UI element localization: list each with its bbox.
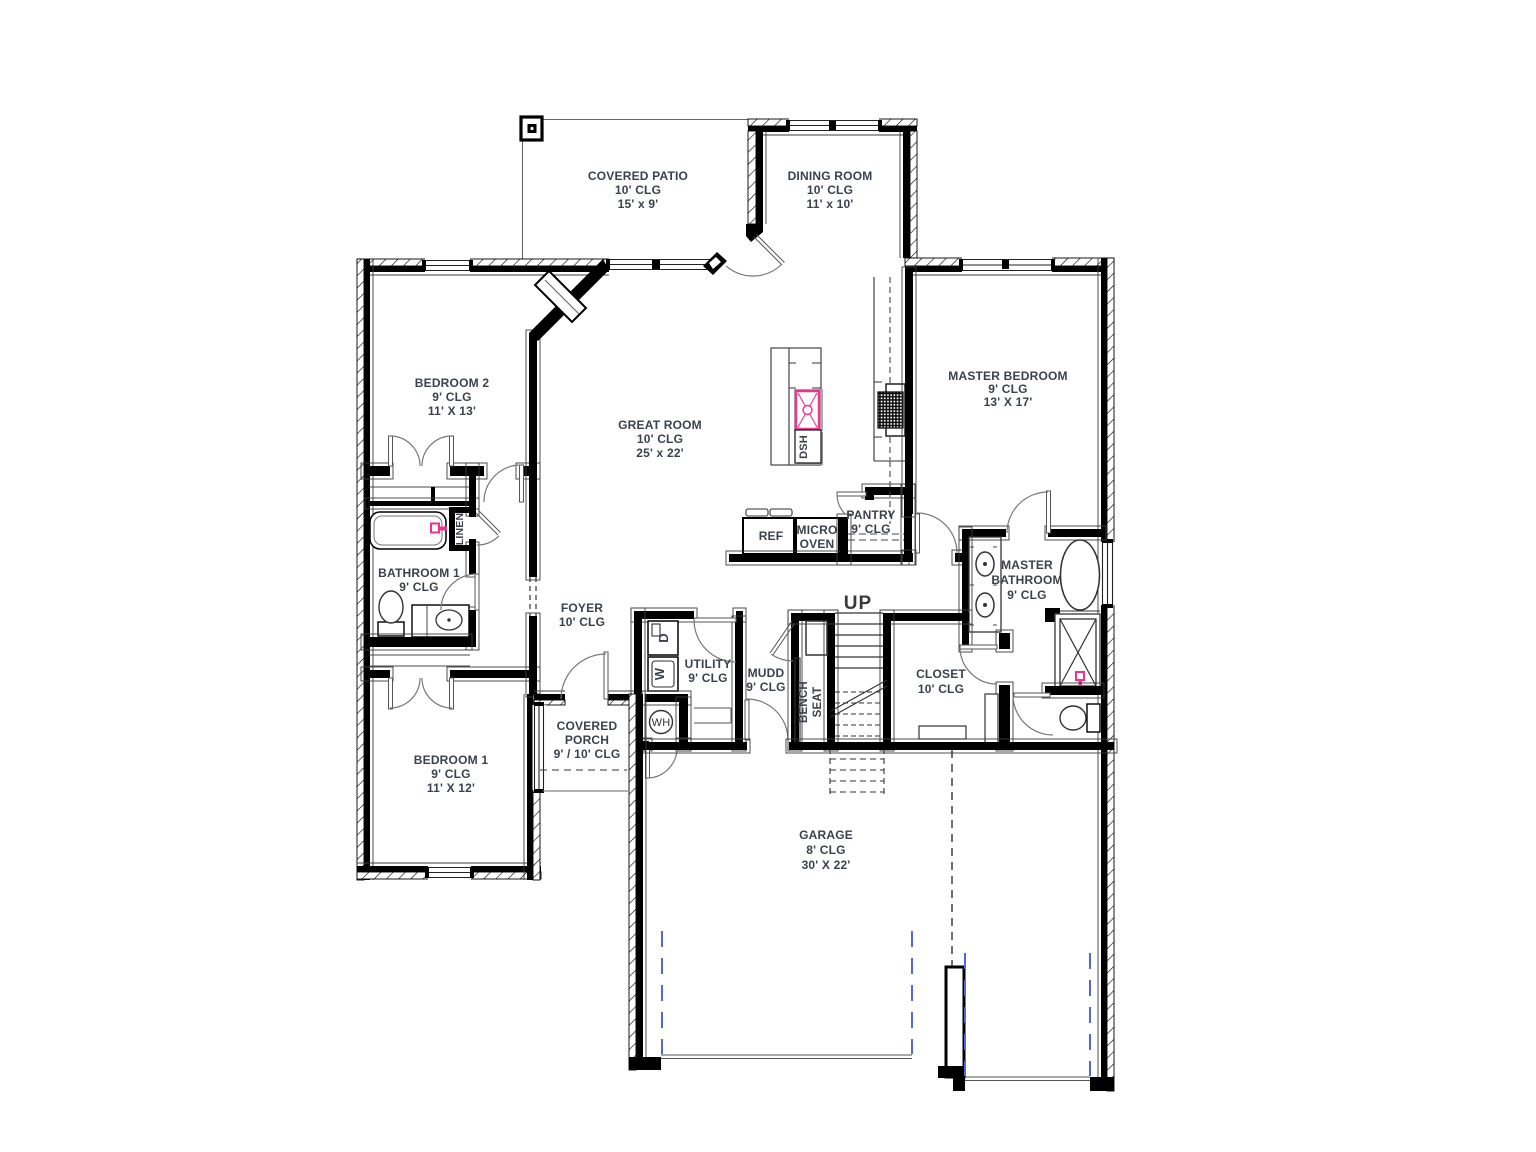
svg-text:10' CLG: 10' CLG — [918, 682, 964, 696]
svg-text:9' CLG: 9' CLG — [746, 680, 785, 694]
svg-text:UTILITY: UTILITY — [685, 657, 732, 671]
svg-text:11' x 10': 11' x 10' — [807, 197, 854, 211]
svg-text:D: D — [656, 633, 671, 643]
svg-text:10' CLG: 10' CLG — [615, 183, 661, 197]
svg-text:9' / 10' CLG: 9' / 10' CLG — [554, 747, 621, 761]
svg-text:9' CLG: 9' CLG — [988, 382, 1027, 396]
svg-text:9' CLG: 9' CLG — [399, 580, 438, 594]
svg-text:10' CLG: 10' CLG — [807, 183, 853, 197]
svg-text:DINING ROOM: DINING ROOM — [788, 169, 873, 183]
svg-text:COVERED: COVERED — [557, 719, 618, 733]
svg-text:BATHROOM 1: BATHROOM 1 — [378, 566, 460, 580]
svg-text:9' CLG: 9' CLG — [688, 671, 727, 685]
svg-text:15' x 9': 15' x 9' — [618, 197, 659, 211]
svg-text:PORCH: PORCH — [565, 733, 609, 747]
svg-text:11' X 12': 11' X 12' — [427, 781, 475, 795]
svg-text:BENCH: BENCH — [798, 681, 810, 723]
svg-text:WH: WH — [652, 717, 671, 729]
svg-text:UP: UP — [844, 593, 872, 614]
svg-text:10' CLG: 10' CLG — [637, 432, 683, 446]
svg-text:DSH: DSH — [798, 435, 810, 459]
svg-text:8' CLG: 8' CLG — [806, 843, 845, 857]
svg-text:SEAT: SEAT — [812, 687, 824, 718]
svg-text:11' X 13': 11' X 13' — [428, 404, 476, 418]
svg-text:REF: REF — [759, 529, 784, 543]
svg-text:LINEN: LINEN — [454, 513, 466, 546]
svg-text:13' X 17': 13' X 17' — [984, 395, 1033, 409]
svg-text:MUDD: MUDD — [748, 666, 785, 680]
svg-text:9' CLG: 9' CLG — [1007, 588, 1046, 602]
svg-text:PANTRY: PANTRY — [846, 508, 895, 522]
svg-text:MASTER BEDROOM: MASTER BEDROOM — [948, 369, 1067, 383]
svg-text:GARAGE: GARAGE — [799, 828, 853, 842]
svg-text:COVERED PATIO: COVERED PATIO — [588, 169, 688, 183]
svg-text:9' CLG: 9' CLG — [431, 767, 470, 781]
svg-text:MICRO: MICRO — [797, 523, 838, 537]
svg-text:25' x 22': 25' x 22' — [636, 446, 684, 460]
svg-text:FOYER: FOYER — [561, 601, 603, 615]
svg-text:9' CLG: 9' CLG — [432, 390, 471, 404]
svg-text:W: W — [652, 667, 667, 680]
svg-text:BEDROOM 1: BEDROOM 1 — [414, 753, 489, 767]
svg-text:GREAT ROOM: GREAT ROOM — [618, 418, 702, 432]
svg-text:10' CLG: 10' CLG — [559, 615, 605, 629]
svg-text:OVEN: OVEN — [800, 537, 835, 551]
svg-text:30' X 22': 30' X 22' — [802, 858, 851, 872]
svg-text:CLOSET: CLOSET — [916, 667, 966, 681]
svg-text:BATHROOM: BATHROOM — [991, 573, 1062, 587]
svg-text:BEDROOM 2: BEDROOM 2 — [415, 376, 490, 390]
svg-text:9' CLG: 9' CLG — [851, 522, 890, 536]
svg-text:MASTER: MASTER — [1001, 558, 1053, 572]
